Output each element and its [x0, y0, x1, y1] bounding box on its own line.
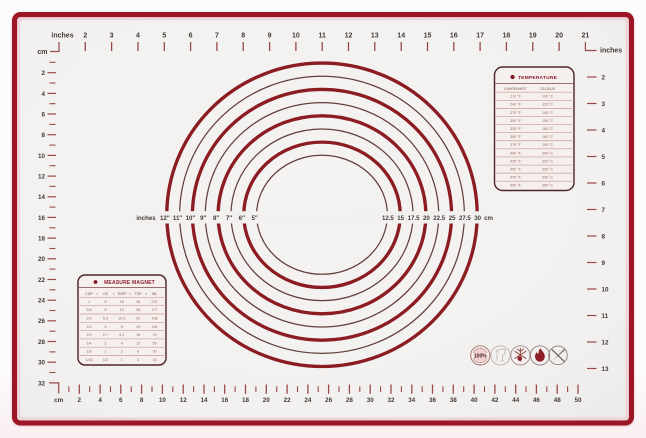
svg-text:1/3: 1/3: [86, 333, 91, 337]
svg-text:16: 16: [120, 300, 124, 304]
svg-text:ML: ML: [152, 292, 157, 296]
svg-text:4: 4: [98, 397, 102, 404]
svg-text:1/8: 1/8: [86, 350, 91, 354]
svg-text:10: 10: [292, 33, 300, 40]
svg-text:32: 32: [38, 380, 46, 387]
svg-text:7: 7: [602, 207, 606, 214]
svg-text:300 °F: 300 °F: [510, 119, 521, 123]
svg-text:inches: inches: [51, 33, 73, 40]
svg-text:5″: 5″: [251, 215, 257, 222]
svg-text:6: 6: [41, 111, 45, 118]
svg-text:13: 13: [602, 366, 610, 373]
svg-text:59: 59: [152, 341, 156, 345]
svg-text:8: 8: [41, 132, 45, 139]
svg-text:32: 32: [387, 397, 395, 404]
svg-text:24: 24: [38, 298, 46, 305]
svg-text:22.5: 22.5: [433, 215, 445, 222]
svg-text:×: ×: [113, 292, 115, 296]
svg-text:235 °C: 235 °C: [542, 167, 553, 171]
svg-text:cm: cm: [484, 215, 493, 222]
svg-text:240 °F: 240 °F: [510, 103, 521, 107]
svg-text:6: 6: [137, 350, 139, 354]
svg-text:1: 1: [121, 358, 123, 362]
svg-text:212 °F: 212 °F: [510, 95, 521, 99]
svg-text:4: 4: [41, 91, 45, 98]
svg-text:2: 2: [83, 33, 87, 40]
svg-text:30: 30: [367, 397, 375, 404]
svg-text:16: 16: [136, 333, 140, 337]
svg-text:36: 36: [429, 397, 437, 404]
svg-text:42: 42: [491, 397, 499, 404]
svg-text:3: 3: [137, 358, 139, 362]
svg-text:20: 20: [263, 397, 271, 404]
svg-text:×: ×: [96, 292, 98, 296]
svg-text:28: 28: [346, 397, 354, 404]
svg-text:2: 2: [121, 350, 123, 354]
svg-text:10: 10: [38, 153, 46, 160]
svg-text:20: 20: [423, 215, 430, 222]
svg-text:TSP: TSP: [135, 292, 143, 296]
svg-text:12: 12: [180, 397, 188, 404]
svg-text:1/2: 1/2: [103, 358, 108, 362]
svg-text:5.3: 5.3: [103, 316, 108, 320]
svg-text:5: 5: [162, 33, 166, 40]
svg-text:×: ×: [145, 292, 147, 296]
svg-text:×: ×: [129, 292, 131, 296]
svg-text:8: 8: [140, 397, 144, 404]
svg-text:48: 48: [554, 397, 562, 404]
svg-text:7: 7: [215, 33, 219, 40]
svg-text:14: 14: [38, 194, 46, 201]
svg-text:115 °C: 115 °C: [542, 103, 553, 107]
svg-text:237: 237: [151, 300, 157, 304]
svg-text:46: 46: [533, 397, 541, 404]
svg-text:6: 6: [602, 180, 606, 187]
svg-text:12: 12: [38, 174, 46, 181]
svg-text:260 °C: 260 °C: [542, 184, 553, 188]
svg-text:5.3: 5.3: [119, 333, 124, 337]
svg-text:13: 13: [371, 33, 379, 40]
svg-text:6: 6: [189, 33, 193, 40]
svg-text:44: 44: [512, 397, 520, 404]
svg-text:8: 8: [104, 300, 106, 304]
svg-text:CUP: CUP: [85, 292, 93, 296]
svg-text:275 °F: 275 °F: [510, 111, 521, 115]
svg-text:10: 10: [602, 286, 610, 293]
svg-text:8: 8: [602, 233, 606, 240]
svg-text:cm: cm: [37, 49, 47, 56]
svg-text:11: 11: [318, 33, 326, 40]
svg-text:CELSIUS: CELSIUS: [540, 87, 556, 91]
svg-text:190 °C: 190 °C: [542, 143, 553, 147]
svg-text:4: 4: [136, 33, 140, 40]
svg-text:425 °F: 425 °F: [510, 159, 521, 163]
svg-text:18: 18: [38, 236, 46, 243]
svg-text:12.5: 12.5: [382, 215, 394, 222]
svg-text:2.7: 2.7: [103, 333, 108, 337]
svg-text:2/3: 2/3: [86, 316, 91, 320]
svg-text:50: 50: [574, 397, 582, 404]
svg-text:26: 26: [38, 318, 46, 325]
svg-text:158: 158: [151, 316, 157, 320]
svg-text:375 °F: 375 °F: [510, 143, 521, 147]
svg-text:140 °C: 140 °C: [542, 111, 553, 115]
svg-text:12: 12: [136, 341, 140, 345]
svg-text:17.5: 17.5: [408, 215, 420, 222]
svg-text:21: 21: [582, 33, 590, 40]
svg-text:118: 118: [152, 325, 158, 329]
svg-text:32: 32: [136, 316, 140, 320]
svg-text:12″: 12″: [160, 215, 170, 222]
svg-text:14: 14: [200, 397, 208, 404]
svg-text:245 °C: 245 °C: [542, 176, 553, 180]
svg-text:15: 15: [397, 215, 404, 222]
svg-text:450 °F: 450 °F: [510, 167, 521, 171]
svg-text:7″: 7″: [226, 215, 232, 222]
svg-text:2: 2: [104, 341, 106, 345]
svg-text:4: 4: [602, 127, 606, 134]
svg-text:19: 19: [529, 33, 537, 40]
svg-text:3: 3: [602, 101, 606, 108]
svg-text:30: 30: [38, 360, 46, 367]
svg-text:2: 2: [78, 397, 82, 404]
svg-text:TBSP: TBSP: [117, 292, 127, 296]
svg-text:10.6: 10.6: [118, 316, 125, 320]
svg-text:16: 16: [450, 33, 458, 40]
svg-text:8: 8: [121, 325, 123, 329]
svg-text:150 °C: 150 °C: [542, 119, 553, 123]
svg-text:6: 6: [119, 397, 123, 404]
svg-text:1/2: 1/2: [86, 325, 91, 329]
svg-text:30: 30: [152, 350, 156, 354]
svg-text:1/4: 1/4: [86, 341, 91, 345]
svg-text:4: 4: [104, 325, 106, 329]
svg-text:350 °F: 350 °F: [510, 135, 521, 139]
svg-text:6: 6: [104, 308, 106, 312]
svg-text:22: 22: [38, 277, 46, 284]
svg-text:177: 177: [151, 308, 157, 312]
svg-text:12: 12: [345, 33, 353, 40]
svg-text:48: 48: [136, 300, 140, 304]
svg-text:6″: 6″: [239, 215, 245, 222]
svg-text:79: 79: [152, 333, 156, 337]
svg-text:16: 16: [221, 397, 229, 404]
svg-text:25: 25: [449, 215, 456, 222]
svg-text:27.5: 27.5: [459, 215, 471, 222]
svg-text:100 °C: 100 °C: [542, 95, 553, 99]
svg-text:325 °F: 325 °F: [510, 127, 521, 131]
svg-text:5: 5: [602, 154, 606, 161]
svg-text:26: 26: [325, 397, 333, 404]
svg-text:220 °C: 220 °C: [542, 159, 553, 163]
svg-text:10″: 10″: [186, 215, 196, 222]
svg-text:475 °F: 475 °F: [510, 176, 521, 180]
svg-text:1: 1: [104, 350, 106, 354]
svg-text:15: 15: [424, 33, 432, 40]
svg-text:FAHRENHEIT: FAHRENHEIT: [504, 87, 527, 91]
svg-text:38: 38: [450, 397, 458, 404]
svg-text:18: 18: [242, 397, 250, 404]
svg-text:8: 8: [241, 33, 245, 40]
svg-text:20: 20: [555, 33, 563, 40]
svg-text:200 °C: 200 °C: [542, 151, 553, 155]
svg-text:36: 36: [136, 308, 140, 312]
svg-text:34: 34: [408, 397, 416, 404]
svg-text:11: 11: [602, 313, 609, 320]
svg-text:12: 12: [602, 339, 610, 346]
svg-text:1: 1: [88, 300, 90, 304]
svg-text:16: 16: [38, 215, 46, 222]
svg-text:20: 20: [38, 256, 46, 263]
svg-text:OZ: OZ: [103, 292, 109, 296]
svg-text:2: 2: [602, 74, 606, 81]
svg-text:MEASURE MAGNET: MEASURE MAGNET: [104, 280, 155, 286]
svg-text:cm: cm: [54, 397, 64, 404]
svg-text:180 °C: 180 °C: [542, 135, 553, 139]
svg-text:18: 18: [503, 33, 511, 40]
svg-text:3: 3: [110, 33, 114, 40]
svg-text:10: 10: [159, 397, 167, 404]
svg-text:17: 17: [476, 33, 484, 40]
svg-text:22: 22: [284, 397, 292, 404]
svg-text:12: 12: [120, 308, 124, 312]
svg-text:40: 40: [471, 397, 479, 404]
svg-text:400 °F: 400 °F: [510, 151, 521, 155]
svg-text:500 °F: 500 °F: [510, 184, 521, 188]
svg-text:inches: inches: [600, 48, 622, 55]
svg-text:TEMPERATURE: TEMPERATURE: [518, 75, 558, 81]
svg-text:30: 30: [474, 215, 481, 222]
svg-text:9: 9: [268, 33, 272, 40]
svg-text:28: 28: [38, 339, 46, 346]
svg-text:1/16: 1/16: [85, 358, 92, 362]
svg-text:165 °C: 165 °C: [542, 127, 553, 131]
svg-text:11″: 11″: [173, 215, 182, 222]
svg-text:9: 9: [602, 260, 606, 267]
svg-text:100%: 100%: [474, 354, 487, 360]
svg-text:2: 2: [41, 70, 45, 77]
svg-text:4: 4: [121, 341, 123, 345]
svg-text:9″: 9″: [200, 215, 206, 222]
svg-text:24: 24: [136, 325, 140, 329]
svg-text:15: 15: [152, 358, 156, 362]
svg-text:3/4: 3/4: [86, 308, 91, 312]
svg-text:inches: inches: [136, 215, 156, 222]
svg-text:8″: 8″: [213, 215, 219, 222]
svg-text:14: 14: [397, 33, 405, 40]
svg-text:24: 24: [304, 397, 312, 404]
